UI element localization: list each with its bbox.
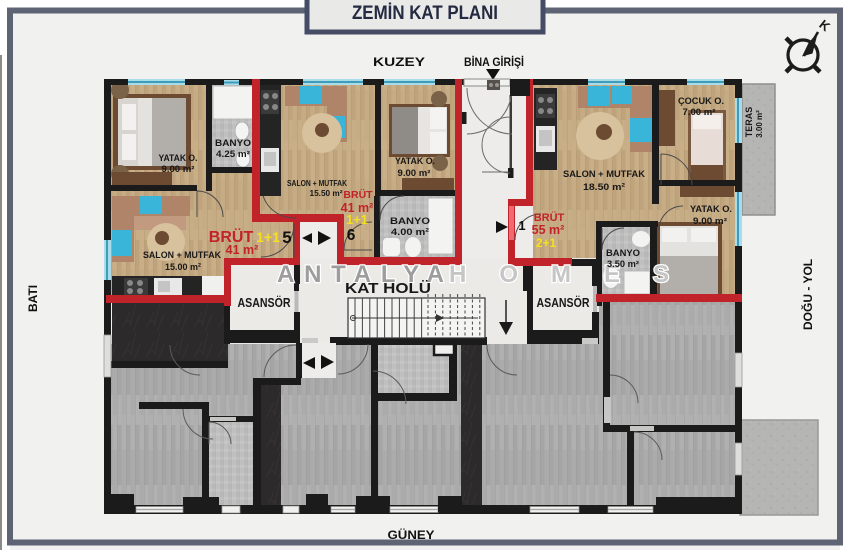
svg-text:1+1: 1+1 xyxy=(346,212,368,227)
svg-text:ÇOCUK O.: ÇOCUK O. xyxy=(678,96,724,106)
svg-text:DOĞU - YOL: DOĞU - YOL xyxy=(800,259,815,330)
svg-text:1: 1 xyxy=(518,218,525,233)
svg-text:7.00 m²: 7.00 m² xyxy=(683,107,716,117)
svg-text:9.00 m²: 9.00 m² xyxy=(162,164,195,174)
svg-text:1+1: 1+1 xyxy=(256,229,280,245)
svg-text:BANYO: BANYO xyxy=(606,248,640,258)
svg-text:15.00 m²: 15.00 m² xyxy=(165,262,201,273)
svg-text:KUZEY: KUZEY xyxy=(373,55,425,69)
svg-text:4.00 m²: 4.00 m² xyxy=(391,227,429,238)
svg-text:TERAS: TERAS xyxy=(744,107,754,138)
svg-text:YATAK O.: YATAK O. xyxy=(690,204,732,214)
svg-text:BATI: BATI xyxy=(26,285,40,312)
svg-text:SALON + MUTFAK: SALON + MUTFAK xyxy=(287,179,347,188)
svg-text:BANYO: BANYO xyxy=(215,138,251,148)
svg-text:18.50 m²: 18.50 m² xyxy=(583,182,625,193)
svg-text:YATAK O.: YATAK O. xyxy=(159,153,198,163)
svg-text:6: 6 xyxy=(347,227,356,244)
svg-text:9.00 m²: 9.00 m² xyxy=(693,216,727,226)
svg-text:41 m²: 41 m² xyxy=(226,243,259,257)
svg-text:GÜNEY: GÜNEY xyxy=(388,527,435,542)
svg-text:9.00 m²: 9.00 m² xyxy=(398,168,431,178)
svg-text:4.25 m²: 4.25 m² xyxy=(216,149,250,159)
svg-text:5: 5 xyxy=(282,228,291,247)
svg-text:15.50 m²: 15.50 m² xyxy=(310,189,343,198)
svg-text:3.00 m²: 3.00 m² xyxy=(755,110,764,138)
svg-text:YATAK O.: YATAK O. xyxy=(395,156,435,166)
svg-text:2+1: 2+1 xyxy=(536,236,557,250)
svg-text:ZEMİN KAT PLANI: ZEMİN KAT PLANI xyxy=(352,3,498,24)
svg-text:ASANSÖR: ASANSÖR xyxy=(238,295,291,310)
svg-text:SALON + MUTFAK: SALON + MUTFAK xyxy=(563,169,645,180)
svg-text:55 m²: 55 m² xyxy=(532,223,565,237)
svg-text:BANYO: BANYO xyxy=(390,216,430,227)
svg-text:KAT HOLÜ: KAT HOLÜ xyxy=(345,280,431,297)
svg-text:SALON + MUTFAK: SALON + MUTFAK xyxy=(143,250,221,261)
svg-text:BRÜT: BRÜT xyxy=(343,188,373,201)
svg-text:ASANSÖR: ASANSÖR xyxy=(537,295,590,310)
svg-text:3.50 m²: 3.50 m² xyxy=(607,259,639,269)
svg-text:BİNA GİRİŞİ: BİNA GİRİŞİ xyxy=(464,54,524,69)
